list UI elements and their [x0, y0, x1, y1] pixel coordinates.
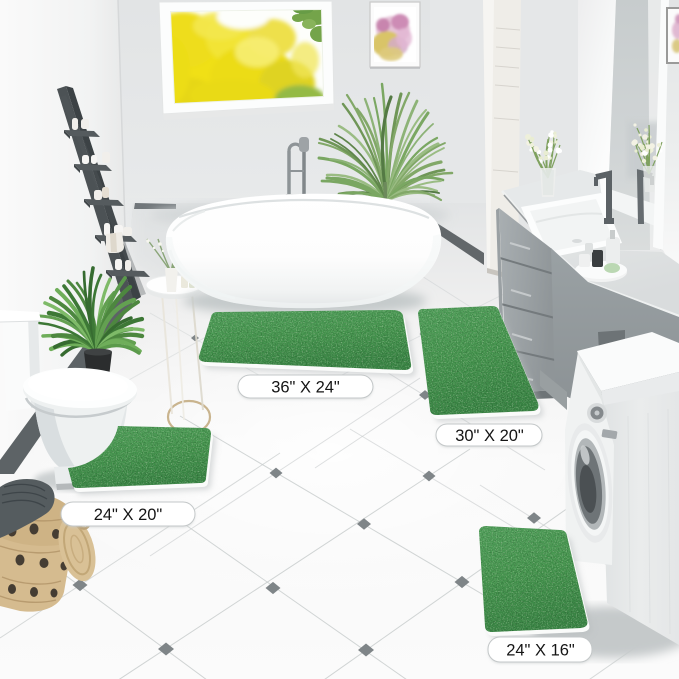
- svg-text:30" X 20": 30" X 20": [455, 427, 524, 445]
- svg-text:24" X 16": 24" X 16": [506, 641, 575, 659]
- svg-text:24" X 20": 24" X 20": [94, 506, 163, 524]
- svg-text:36" X 24": 36" X 24": [271, 378, 340, 396]
